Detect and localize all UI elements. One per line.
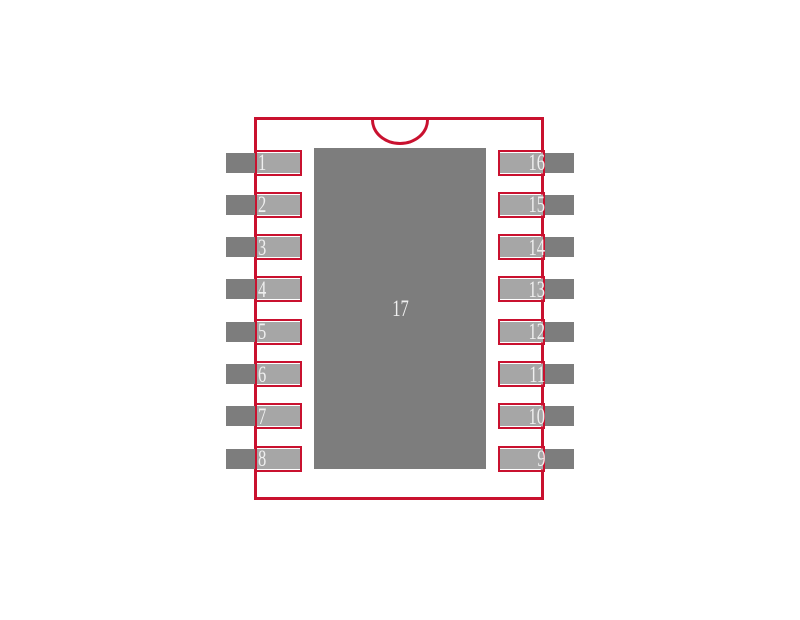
pin-1-number: 1 (258, 150, 266, 176)
pin-6-number: 6 (258, 361, 266, 387)
pin-9: 9 (497, 446, 574, 472)
pin-15-number: 15 (528, 192, 545, 218)
pin-13: 13 (497, 276, 574, 302)
pin-5: 5 (226, 319, 303, 345)
pin-7: 7 (226, 403, 303, 429)
pin-6: 6 (226, 361, 303, 387)
pin-4-number: 4 (258, 276, 266, 302)
pin-10: 10 (497, 403, 574, 429)
pin-16-number: 16 (528, 150, 545, 176)
pin-14-number: 14 (528, 234, 545, 260)
exposed-pad-number: 17 (392, 297, 409, 320)
pin-11-number: 11 (529, 361, 545, 387)
pin-14: 14 (497, 234, 574, 260)
pin-16: 16 (497, 150, 574, 176)
pin-2-number: 2 (258, 192, 266, 218)
ic-footprint-diagram: 17 12345678 161514131211109 (0, 0, 800, 620)
pin-5-number: 5 (258, 319, 266, 345)
pin-12-number: 12 (528, 319, 545, 345)
pin-11: 11 (497, 361, 574, 387)
pin-15: 15 (497, 192, 574, 218)
pin-7-number: 7 (258, 403, 266, 429)
pin-13-number: 13 (528, 276, 545, 302)
pin-12: 12 (497, 319, 574, 345)
pin-3: 3 (226, 234, 303, 260)
pin-8: 8 (226, 446, 303, 472)
pin-10-number: 10 (528, 403, 545, 429)
pin-9-number: 9 (537, 446, 545, 472)
pin-4: 4 (226, 276, 303, 302)
pin-8-number: 8 (258, 446, 266, 472)
pin-3-number: 3 (258, 234, 266, 260)
exposed-pad: 17 (314, 148, 486, 469)
pin-1: 1 (226, 150, 303, 176)
pin-2: 2 (226, 192, 303, 218)
